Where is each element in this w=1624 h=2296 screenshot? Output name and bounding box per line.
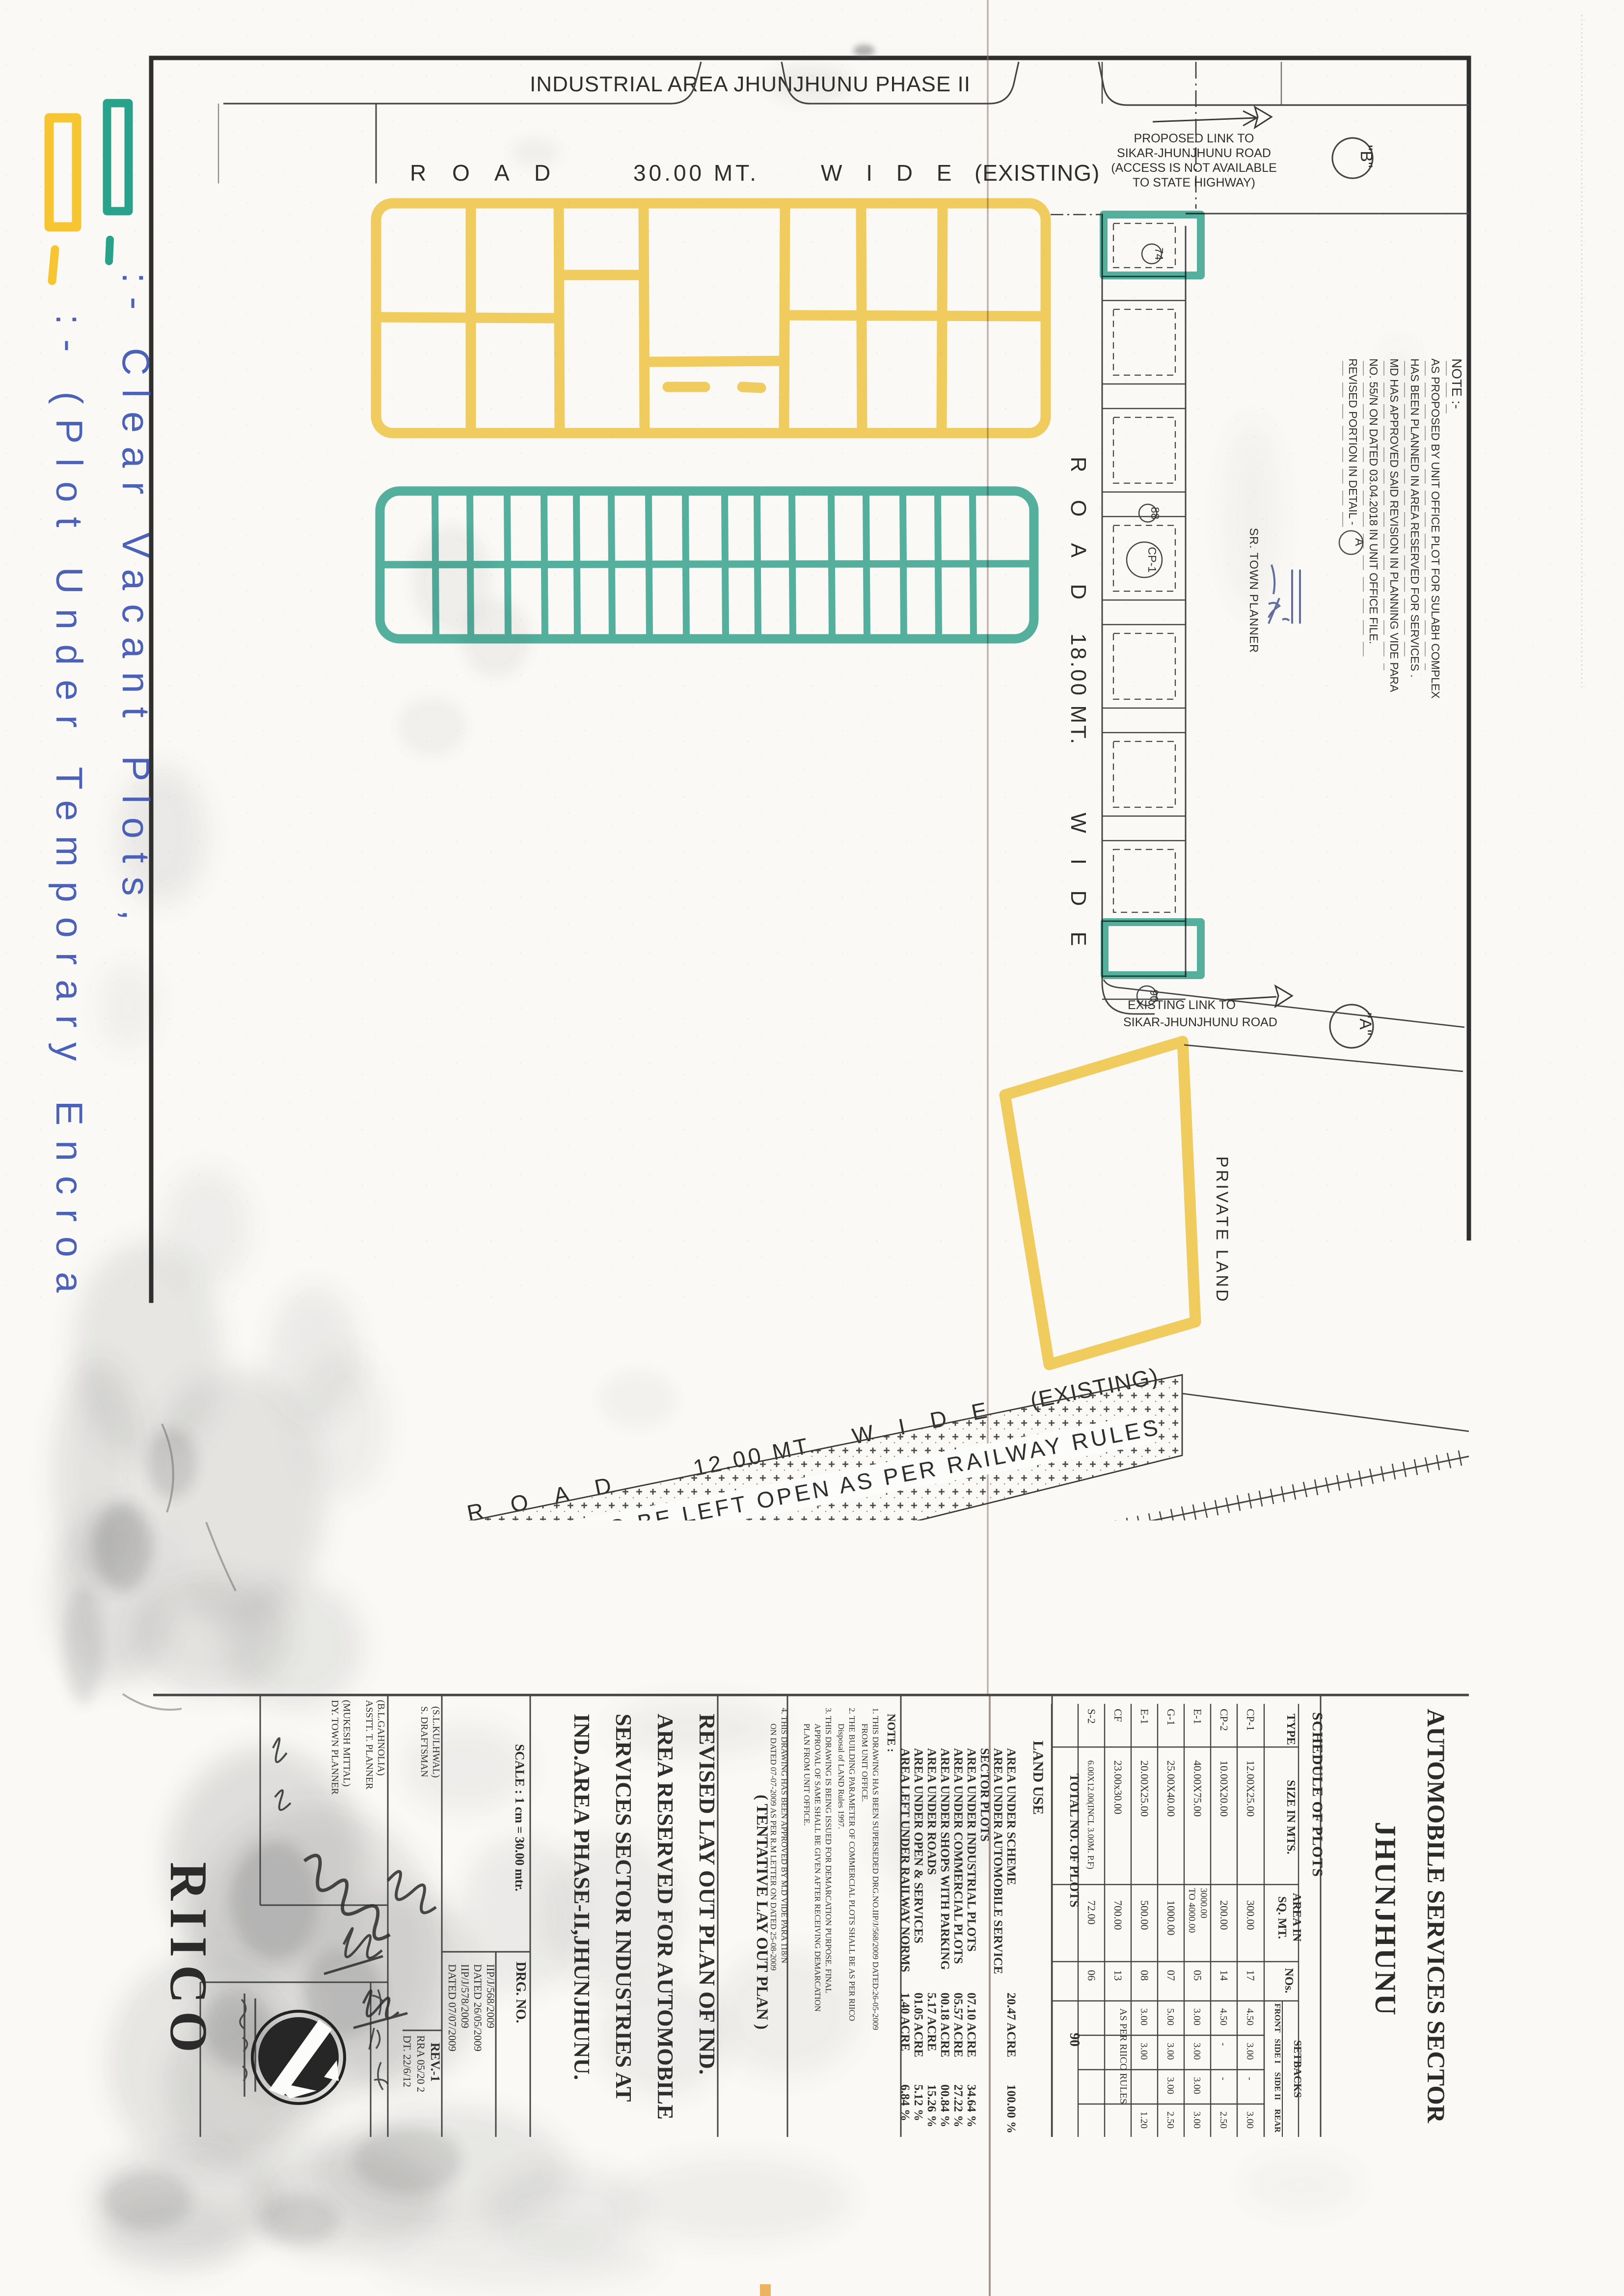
svg-text:EXISTING LINK TO: EXISTING LINK TO bbox=[1128, 998, 1236, 1012]
svg-text:SERVICES SECTOR INDUSTRIES AT: SERVICES SECTOR INDUSTRIES AT bbox=[611, 1714, 636, 2102]
svg-text:3.00: 3.00 bbox=[1165, 2077, 1176, 2094]
svg-text:6: 6 bbox=[973, 874, 986, 880]
svg-text:20.47 ACRE: 20.47 ACRE bbox=[1004, 1993, 1018, 2057]
svg-text:64: 64 bbox=[601, 371, 614, 383]
svg-text:-: - bbox=[1245, 2077, 1255, 2080]
svg-text:6.84 %: 6.84 % bbox=[898, 2084, 912, 2121]
svg-text::- (Plot Under Temporary Encro: :- (Plot Under Temporary Encroachment) bbox=[48, 314, 90, 1545]
svg-text:05.57 ACRE: 05.57 ACRE bbox=[951, 1993, 965, 2057]
svg-text:INDUSTRIAL AREA JHUNJHUNU P: INDUSTRIAL AREA JHUNJHUNU PHASE II bbox=[530, 72, 971, 96]
svg-text:WEIGH: WEIGH bbox=[579, 239, 614, 250]
svg-text:20.00X25.00: 20.00X25.00 bbox=[1138, 1760, 1151, 1817]
svg-text:AS PER RIICO RULES: AS PER RIICO RULES bbox=[1118, 2008, 1129, 2104]
svg-text:NOTE :: NOTE : bbox=[885, 1714, 897, 1752]
svg-text:08: 08 bbox=[1138, 1970, 1151, 1981]
svg-text:3.00: 3.00 bbox=[1138, 2008, 1149, 2025]
svg-text:34.64 %: 34.64 % bbox=[965, 2084, 978, 2128]
svg-text:07: 07 bbox=[1165, 1970, 1177, 1981]
svg-text:WARE HOUSE: WARE HOUSE bbox=[196, 411, 215, 559]
svg-text:9: 9 bbox=[700, 848, 713, 855]
svg-text:DRG. NO.: DRG. NO. bbox=[513, 1962, 528, 2023]
svg-text:FRONT: FRONT bbox=[1273, 2003, 1282, 2033]
svg-text:CP-1: CP-1 bbox=[1146, 547, 1159, 573]
svg-text:HOTEL: HOTEL bbox=[443, 259, 455, 294]
svg-text:AREA UNDER AUTOMOBILE SERVICE: AREA UNDER AUTOMOBILE SERVICE bbox=[991, 1748, 1004, 1974]
svg-text:2.50: 2.50 bbox=[1218, 2111, 1229, 2129]
svg-text:SIKAR-JHUNJHUNU ROAD: SIKAR-JHUNJHUNU ROAD bbox=[1117, 146, 1271, 160]
svg-text:3.00: 3.00 bbox=[1165, 2043, 1176, 2060]
svg-text:POST OFFICE: POST OFFICE bbox=[514, 330, 525, 395]
svg-text:3. THIS DRAWING IS BEING ISSUE: 3. THIS DRAWING IS BEING ISSUED FOR DEMA… bbox=[824, 1708, 833, 1994]
svg-text:06: 06 bbox=[1085, 1970, 1098, 1981]
svg-text:30.00 MT.: 30.00 MT. bbox=[309, 668, 335, 789]
svg-text:AREA UNDER SHOPS WITH PARKING: AREA UNDER SHOPS WITH PARKING bbox=[938, 1748, 951, 1970]
svg-text:300.00: 300.00 bbox=[1245, 1900, 1257, 1930]
svg-text:54: 54 bbox=[1000, 521, 1013, 534]
svg-text:-: - bbox=[1218, 2077, 1229, 2080]
svg-text:21: 21 bbox=[1011, 591, 1024, 604]
svg-text:15.26 %: 15.26 % bbox=[925, 2084, 938, 2128]
svg-text:3.00: 3.00 bbox=[1191, 2077, 1202, 2094]
svg-text:19: 19 bbox=[925, 751, 938, 764]
svg-text:1.40 ACRE: 1.40 ACRE bbox=[898, 1993, 912, 2051]
svg-text:62: 62 bbox=[409, 288, 422, 301]
svg-text:SIDE I: SIDE I bbox=[1273, 2039, 1282, 2064]
svg-text:DT. 22/6/12: DT. 22/6/12 bbox=[401, 2035, 413, 2087]
svg-text:AREA IN: AREA IN bbox=[1290, 1893, 1303, 1942]
svg-text:MD HAS APPROVED SAID REVISION: MD HAS APPROVED SAID REVISION IN PLANNIN… bbox=[1388, 358, 1401, 692]
svg-text:17: 17 bbox=[1245, 1970, 1257, 1981]
svg-text:SCALE : 1 cm = 30.00 mtr.: SCALE : 1 cm = 30.00 mtr. bbox=[513, 1744, 527, 1891]
svg-text:JHUNJHUNU: JHUNJHUNU bbox=[1369, 1822, 1402, 2017]
svg-text:REVISED LAY OUT PLAN OF IND.: REVISED LAY OUT PLAN OF IND. bbox=[695, 1714, 720, 2075]
svg-text:6.00X12.00(INCL 3.00M. P.F): 6.00X12.00(INCL 3.00M. P.F) bbox=[1085, 1760, 1096, 1869]
svg-text:3.00: 3.00 bbox=[1245, 2043, 1255, 2060]
svg-text:TO STATE HIGHWAY): TO STATE HIGHWAY) bbox=[1133, 176, 1255, 190]
svg-text:AREA UNDER INDUSTRIAL PLOTS: AREA UNDER INDUSTRIAL PLOTS bbox=[965, 1748, 978, 1952]
svg-text:38: 38 bbox=[416, 526, 429, 539]
svg-text:"B": "B" bbox=[1357, 145, 1376, 168]
svg-text:H-1: H-1 bbox=[843, 731, 856, 749]
svg-text:NOTE :-: NOTE :- bbox=[1449, 358, 1464, 409]
svg-text:2. THE BUILDING PARAMETER OF C: 2. THE BUILDING PARAMETER OF COMMERCIAL … bbox=[847, 1708, 857, 2021]
svg-text:5.17 ACRE: 5.17 ACRE bbox=[925, 1993, 938, 2051]
svg-text:SECTOR PLOTS: SECTOR PLOTS bbox=[978, 1748, 991, 1842]
svg-text:7: 7 bbox=[886, 867, 899, 874]
svg-text:IND.AREA PHASE-II,JHUNJHUNU.: IND.AREA PHASE-II,JHUNJHUNU. bbox=[569, 1714, 595, 2080]
svg-text:CP-2: CP-2 bbox=[1218, 1709, 1230, 1731]
svg-text:16: 16 bbox=[698, 741, 710, 754]
svg-text:R O A D: R O A D bbox=[410, 160, 560, 186]
svg-text:CP: CP bbox=[918, 272, 931, 288]
svg-text:TOTAL NO. OF PLOTS: TOTAL NO. OF PLOTS bbox=[1067, 1774, 1082, 1908]
svg-text:18.00 MT.: 18.00 MT. bbox=[643, 656, 769, 682]
svg-text:200.00: 200.00 bbox=[1218, 1900, 1230, 1930]
svg-text:58: 58 bbox=[766, 381, 779, 393]
svg-text:5.12 %: 5.12 % bbox=[912, 2084, 925, 2121]
svg-text:1.20: 1.20 bbox=[1138, 2111, 1149, 2129]
svg-text:PARKING 5.50 MT. WIDE: PARKING 5.50 MT. WIDE bbox=[651, 416, 776, 429]
svg-text:AREA RESERVED FOR AUTOMOBILE: AREA RESERVED FOR AUTOMOBILE bbox=[653, 1714, 678, 2120]
svg-text:29: 29 bbox=[706, 591, 719, 604]
svg-text:AREA UNDER SCHEME: AREA UNDER SCHEME bbox=[1004, 1748, 1018, 1885]
svg-text:RRA 05/20 2: RRA 05/20 2 bbox=[415, 2035, 427, 2092]
svg-text:AREA LEFT UNDER RAILWAY NORMS: AREA LEFT UNDER RAILWAY NORMS bbox=[898, 1748, 912, 1972]
svg-text:00.84 %: 00.84 % bbox=[938, 2084, 951, 2128]
svg-text:AREA UNDER COMMERCIAL PLOTS: AREA UNDER COMMERCIAL PLOTS bbox=[951, 1748, 965, 1964]
svg-text:(EXISTING): (EXISTING) bbox=[309, 1046, 335, 1176]
svg-text:20: 20 bbox=[983, 756, 996, 768]
svg-text:18.00 MT.: 18.00 MT. bbox=[638, 444, 764, 469]
svg-text:W I D E: W I D E bbox=[837, 656, 976, 682]
svg-text:5.00: 5.00 bbox=[1165, 2008, 1176, 2025]
svg-text:44: 44 bbox=[634, 524, 647, 537]
svg-text:66: 66 bbox=[411, 374, 424, 387]
svg-text:72: 72 bbox=[899, 277, 912, 290]
svg-text:RIICO: RIICO bbox=[159, 1862, 217, 2060]
svg-text:27.22 %: 27.22 % bbox=[951, 2084, 965, 2128]
svg-text:SQ. MT.: SQ. MT. bbox=[1275, 1896, 1288, 1939]
svg-text:DY. TOWN PLANNER: DY. TOWN PLANNER bbox=[329, 1700, 340, 1795]
svg-text:3000.00: 3000.00 bbox=[1198, 1888, 1209, 1918]
svg-text:BRIDGE: BRIDGE bbox=[577, 252, 617, 264]
svg-text:REVISED PORTION IN DETAIL -: REVISED PORTION IN DETAIL - bbox=[1347, 358, 1359, 525]
svg-text:G-1: G-1 bbox=[1165, 1709, 1177, 1725]
svg-text:HAS BEEN PLANNED IN AREA RESER: HAS BEEN PLANNED IN AREA RESERVED FOR SE… bbox=[1408, 358, 1421, 678]
svg-text:R O A D: R O A D bbox=[420, 656, 570, 682]
svg-text:DATED 07/07/2009: DATED 07/07/2009 bbox=[446, 1964, 459, 2051]
svg-text:CP: CP bbox=[623, 223, 636, 239]
svg-text:01.05 ACRE: 01.05 ACRE bbox=[912, 1993, 925, 2057]
svg-text:AREA UNDER OPEN & SERVICES: AREA UNDER OPEN & SERVICES bbox=[912, 1748, 925, 1943]
svg-text:05: 05 bbox=[1191, 1970, 1204, 1981]
svg-text:CP: CP bbox=[433, 361, 446, 377]
svg-text:PROPOSED LINK TO: PROPOSED LINK TO bbox=[1134, 132, 1254, 145]
svg-text:W I D E: W I D E bbox=[1066, 813, 1090, 956]
svg-text:NO. 55/N ON DATED 03.04.2018 I: NO. 55/N ON DATED 03.04.2018 IN UNIT OFF… bbox=[1367, 358, 1380, 644]
svg-text:Disposal of LAND Rules 1997.: Disposal of LAND Rules 1997. bbox=[837, 1723, 846, 1829]
svg-text:(B.L.GAHNOLIA): (B.L.GAHNOLIA) bbox=[376, 1700, 386, 1776]
svg-text:E-1: E-1 bbox=[1191, 1709, 1204, 1724]
svg-text:3.00: 3.00 bbox=[1191, 2043, 1202, 2060]
svg-text:30.00 MT.: 30.00 MT. bbox=[633, 160, 759, 186]
svg-text:18.00 MT.: 18.00 MT. bbox=[1066, 633, 1090, 746]
svg-text:AREA UNDER ROADS: AREA UNDER ROADS bbox=[925, 1748, 938, 1875]
svg-text:(EXISTING): (EXISTING) bbox=[974, 160, 1100, 186]
svg-text:700.00: 700.00 bbox=[1112, 1900, 1124, 1930]
svg-text:W I D E: W I D E bbox=[835, 444, 974, 469]
svg-text:( TENTATIVE LAY OUT PLAN ): ( TENTATIVE LAY OUT PLAN ) bbox=[753, 1795, 771, 2029]
svg-text:70: 70 bbox=[682, 276, 695, 289]
svg-text:56: 56 bbox=[926, 339, 939, 352]
svg-text:40.00X75.00: 40.00X75.00 bbox=[1191, 1760, 1204, 1817]
svg-text:S2: S2 bbox=[725, 380, 738, 394]
svg-text:10.00X20.00: 10.00X20.00 bbox=[1218, 1760, 1230, 1817]
svg-text:CP: CP bbox=[831, 359, 843, 375]
svg-text:"A": "A" bbox=[1356, 1012, 1375, 1036]
svg-text:HOME: HOME bbox=[590, 318, 603, 354]
svg-text:TYPE: TYPE bbox=[1284, 1714, 1297, 1745]
svg-text:14: 14 bbox=[526, 732, 539, 745]
svg-text:BANK/: BANK/ bbox=[527, 339, 538, 368]
svg-text:W I D E: W I D E bbox=[821, 160, 960, 186]
svg-text:12: 12 bbox=[446, 822, 459, 835]
svg-text:AS PROPOSED BY UNIT OFFICE PLO: AS PROPOSED BY UNIT OFFICE PLOT FOR SULA… bbox=[1429, 358, 1442, 699]
svg-text::- Clear Vacant Plots,: :- Clear Vacant Plots, bbox=[114, 273, 158, 934]
svg-text:72.00: 72.00 bbox=[1085, 1900, 1098, 1925]
svg-text:R O A D: R O A D bbox=[1066, 457, 1090, 610]
svg-text:W I D E: W I D E bbox=[309, 879, 335, 1025]
svg-text:R O A D: R O A D bbox=[309, 461, 335, 618]
svg-text:3.00: 3.00 bbox=[1191, 2111, 1202, 2129]
svg-text:CP-1: CP-1 bbox=[1245, 1709, 1257, 1731]
svg-text:SETBACKS: SETBACKS bbox=[1292, 2040, 1304, 2098]
svg-text:PRIVATE LAND: PRIVATE LAND bbox=[1213, 1156, 1231, 1304]
svg-text:SIZE IN MTS.: SIZE IN MTS. bbox=[1284, 1780, 1297, 1854]
svg-text:IIP/J/568/2009: IIP/J/568/2009 bbox=[485, 1964, 497, 2028]
svg-text:PLAN FROM UNIT OFFICE.: PLAN FROM UNIT OFFICE. bbox=[802, 1723, 812, 1826]
svg-text:RESIDENTIAL COLONY: RESIDENTIAL COLONY bbox=[198, 1261, 217, 1489]
svg-text:IIP/J/578/2009: IIP/J/578/2009 bbox=[459, 1964, 471, 2028]
svg-text:3.00: 3.00 bbox=[1191, 2008, 1202, 2025]
svg-text:E-1: E-1 bbox=[1138, 1709, 1151, 1724]
svg-text:NOs.: NOs. bbox=[1282, 1968, 1295, 1993]
svg-text:-: - bbox=[1218, 2043, 1229, 2046]
svg-text:3.00: 3.00 bbox=[1138, 2043, 1149, 2060]
svg-text:15: 15 bbox=[630, 739, 643, 752]
svg-text:57: 57 bbox=[842, 334, 855, 347]
svg-text:10: 10 bbox=[630, 847, 643, 859]
svg-text:PETROL PUMP: PETROL PUMP bbox=[714, 245, 729, 346]
svg-text:NURSING: NURSING bbox=[607, 305, 620, 360]
svg-text:TO 4000.00: TO 4000.00 bbox=[1187, 1888, 1197, 1933]
svg-text:A: A bbox=[1353, 538, 1366, 546]
svg-text:12.00X25.00: 12.00X25.00 bbox=[1245, 1760, 1257, 1817]
svg-text:A: A bbox=[713, 1020, 731, 1032]
svg-text:4. THIS DRAWING HAS BEEN APPRO: 4. THIS DRAWING HAS BEEN APPROVED BY M.D… bbox=[780, 1708, 789, 1963]
svg-text:SIKAR-JHUNJHUNU ROAD: SIKAR-JHUNJHUNU ROAD bbox=[1123, 1015, 1277, 1029]
svg-text:ASSTT. T. PLANNER: ASSTT. T. PLANNER bbox=[364, 1700, 375, 1790]
svg-text:APPROVAL OF SAME SHALL BE GIVE: APPROVAL OF SAME SHALL BE GIVEN AFTER RE… bbox=[813, 1723, 822, 2012]
svg-text:17: 17 bbox=[775, 746, 787, 759]
svg-text:CP: CP bbox=[623, 286, 636, 301]
svg-text:AUTOMOBILE SERVICES SECTOR: AUTOMOBILE SERVICES SECTOR bbox=[1422, 1709, 1449, 2124]
svg-text:DATED 26/05/2009: DATED 26/05/2009 bbox=[472, 1964, 484, 2051]
svg-text:CP: CP bbox=[828, 266, 840, 282]
svg-text:CP: CP bbox=[524, 269, 537, 284]
svg-text:18: 18 bbox=[848, 764, 861, 776]
svg-text:100.00 %: 100.00 % bbox=[1004, 2084, 1018, 2133]
svg-text:07.10 ACRE: 07.10 ACRE bbox=[965, 1993, 978, 2057]
svg-text:14: 14 bbox=[1218, 1970, 1230, 1981]
svg-text:4.50: 4.50 bbox=[1218, 2008, 1229, 2025]
svg-text:13: 13 bbox=[1112, 1970, 1124, 1981]
svg-text:R O A D: R O A D bbox=[416, 444, 567, 469]
svg-text:(ACCESS IS NOT AVAILABLE: (ACCESS IS NOT AVAILABLE bbox=[1111, 161, 1277, 175]
svg-text:37: 37 bbox=[414, 591, 427, 604]
svg-text:CF: CF bbox=[1112, 1709, 1124, 1722]
svg-text:REAR: REAR bbox=[1273, 2109, 1282, 2133]
svg-text:23.00x30.00: 23.00x30.00 bbox=[1112, 1760, 1124, 1814]
svg-text:FROM UNIT OFFICE.: FROM UNIT OFFICE. bbox=[860, 1723, 869, 1802]
svg-text:CP: CP bbox=[996, 369, 1008, 385]
svg-text:SIDE II: SIDE II bbox=[1273, 2072, 1282, 2101]
svg-text:G-1: G-1 bbox=[824, 857, 837, 875]
svg-text:3.00: 3.00 bbox=[1245, 2111, 1255, 2129]
svg-text:(S.L.KULHWAL): (S.L.KULHWAL) bbox=[431, 1706, 441, 1778]
svg-text:13: 13 bbox=[446, 733, 459, 745]
svg-text:25.00X40.00: 25.00X40.00 bbox=[1165, 1760, 1177, 1817]
svg-text:SR. TOWN PLANNER: SR. TOWN PLANNER bbox=[1247, 528, 1260, 653]
svg-text:CP: CP bbox=[1000, 260, 1012, 275]
svg-text:8: 8 bbox=[789, 855, 802, 861]
svg-text:71: 71 bbox=[812, 288, 825, 301]
svg-text:73: 73 bbox=[982, 285, 995, 298]
svg-text:CP: CP bbox=[916, 359, 929, 375]
svg-text:88: 88 bbox=[1149, 507, 1162, 519]
svg-text:CP: CP bbox=[432, 267, 444, 283]
svg-text:11: 11 bbox=[523, 830, 536, 842]
svg-text:2.50: 2.50 bbox=[1165, 2111, 1176, 2129]
svg-text:SCHEDULE OF PLOTS: SCHEDULE OF PLOTS bbox=[1309, 1712, 1326, 1877]
svg-text:74: 74 bbox=[1153, 247, 1165, 260]
svg-text:68: 68 bbox=[497, 288, 510, 301]
svg-text:1000.00: 1000.00 bbox=[1165, 1900, 1177, 1936]
svg-text:CP: CP bbox=[678, 241, 691, 256]
svg-text:(MUKESH MITTAL): (MUKESH MITTAL) bbox=[341, 1700, 352, 1787]
svg-text:00.18 ACRE: 00.18 ACRE bbox=[938, 1993, 951, 2057]
svg-text:65: 65 bbox=[501, 358, 514, 371]
svg-text:S-2: S-2 bbox=[1085, 1709, 1098, 1724]
svg-text:LAND USE: LAND USE bbox=[1030, 1741, 1046, 1815]
svg-text:S. DRAFTSMAN: S. DRAFTSMAN bbox=[419, 1706, 430, 1777]
svg-text:90: 90 bbox=[1067, 2033, 1082, 2047]
svg-text:500.00: 500.00 bbox=[1138, 1900, 1151, 1930]
svg-text:4.50: 4.50 bbox=[1245, 2008, 1255, 2025]
svg-text:REV.-1: REV.-1 bbox=[428, 2043, 442, 2082]
svg-text:1. THIS DRAWING HAS BEEN SUPER: 1. THIS DRAWING HAS BEEN SUPERSEDED DRG.… bbox=[871, 1708, 880, 2030]
